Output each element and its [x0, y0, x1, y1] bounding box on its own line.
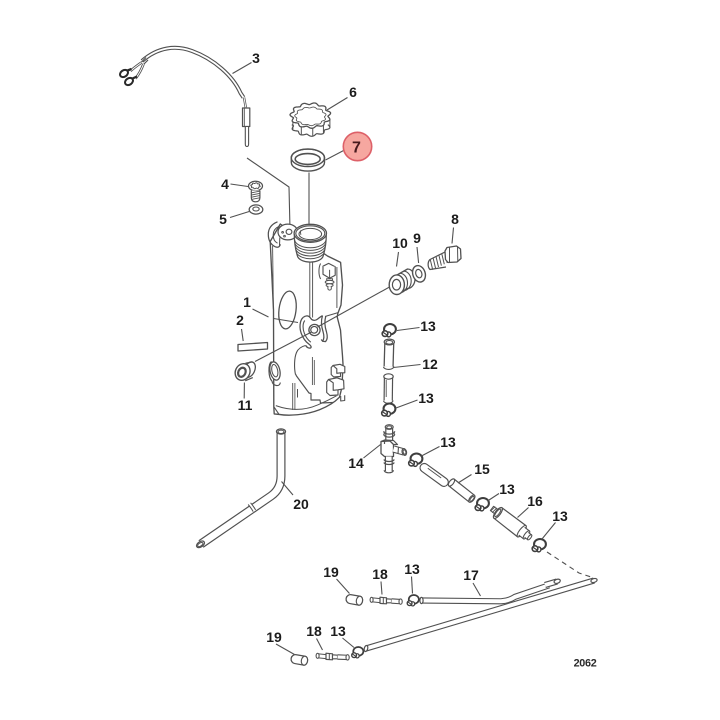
svg-text:6: 6 — [349, 84, 357, 100]
svg-text:12: 12 — [422, 356, 438, 372]
svg-text:13: 13 — [330, 623, 346, 639]
svg-text:17: 17 — [463, 567, 479, 583]
svg-text:14: 14 — [348, 455, 364, 471]
svg-text:10: 10 — [392, 235, 408, 251]
svg-text:5: 5 — [219, 211, 227, 227]
svg-text:13: 13 — [499, 481, 515, 497]
svg-text:18: 18 — [306, 623, 322, 639]
svg-text:9: 9 — [413, 230, 421, 246]
svg-text:19: 19 — [266, 629, 282, 645]
svg-text:20: 20 — [293, 496, 309, 512]
svg-text:2: 2 — [236, 312, 244, 328]
svg-text:7: 7 — [352, 140, 361, 157]
svg-text:11: 11 — [238, 397, 253, 413]
svg-text:13: 13 — [552, 508, 568, 524]
svg-text:8: 8 — [451, 211, 459, 227]
svg-text:19: 19 — [323, 564, 339, 580]
svg-text:4: 4 — [221, 176, 229, 192]
svg-text:13: 13 — [404, 561, 420, 577]
svg-text:3: 3 — [252, 50, 260, 66]
svg-text:2062: 2062 — [574, 658, 597, 670]
svg-text:18: 18 — [372, 566, 388, 582]
svg-text:16: 16 — [527, 493, 543, 509]
svg-text:13: 13 — [420, 318, 436, 334]
svg-text:15: 15 — [474, 461, 490, 477]
svg-text:1: 1 — [243, 294, 251, 310]
svg-text:13: 13 — [418, 390, 434, 406]
svg-text:13: 13 — [440, 434, 456, 450]
